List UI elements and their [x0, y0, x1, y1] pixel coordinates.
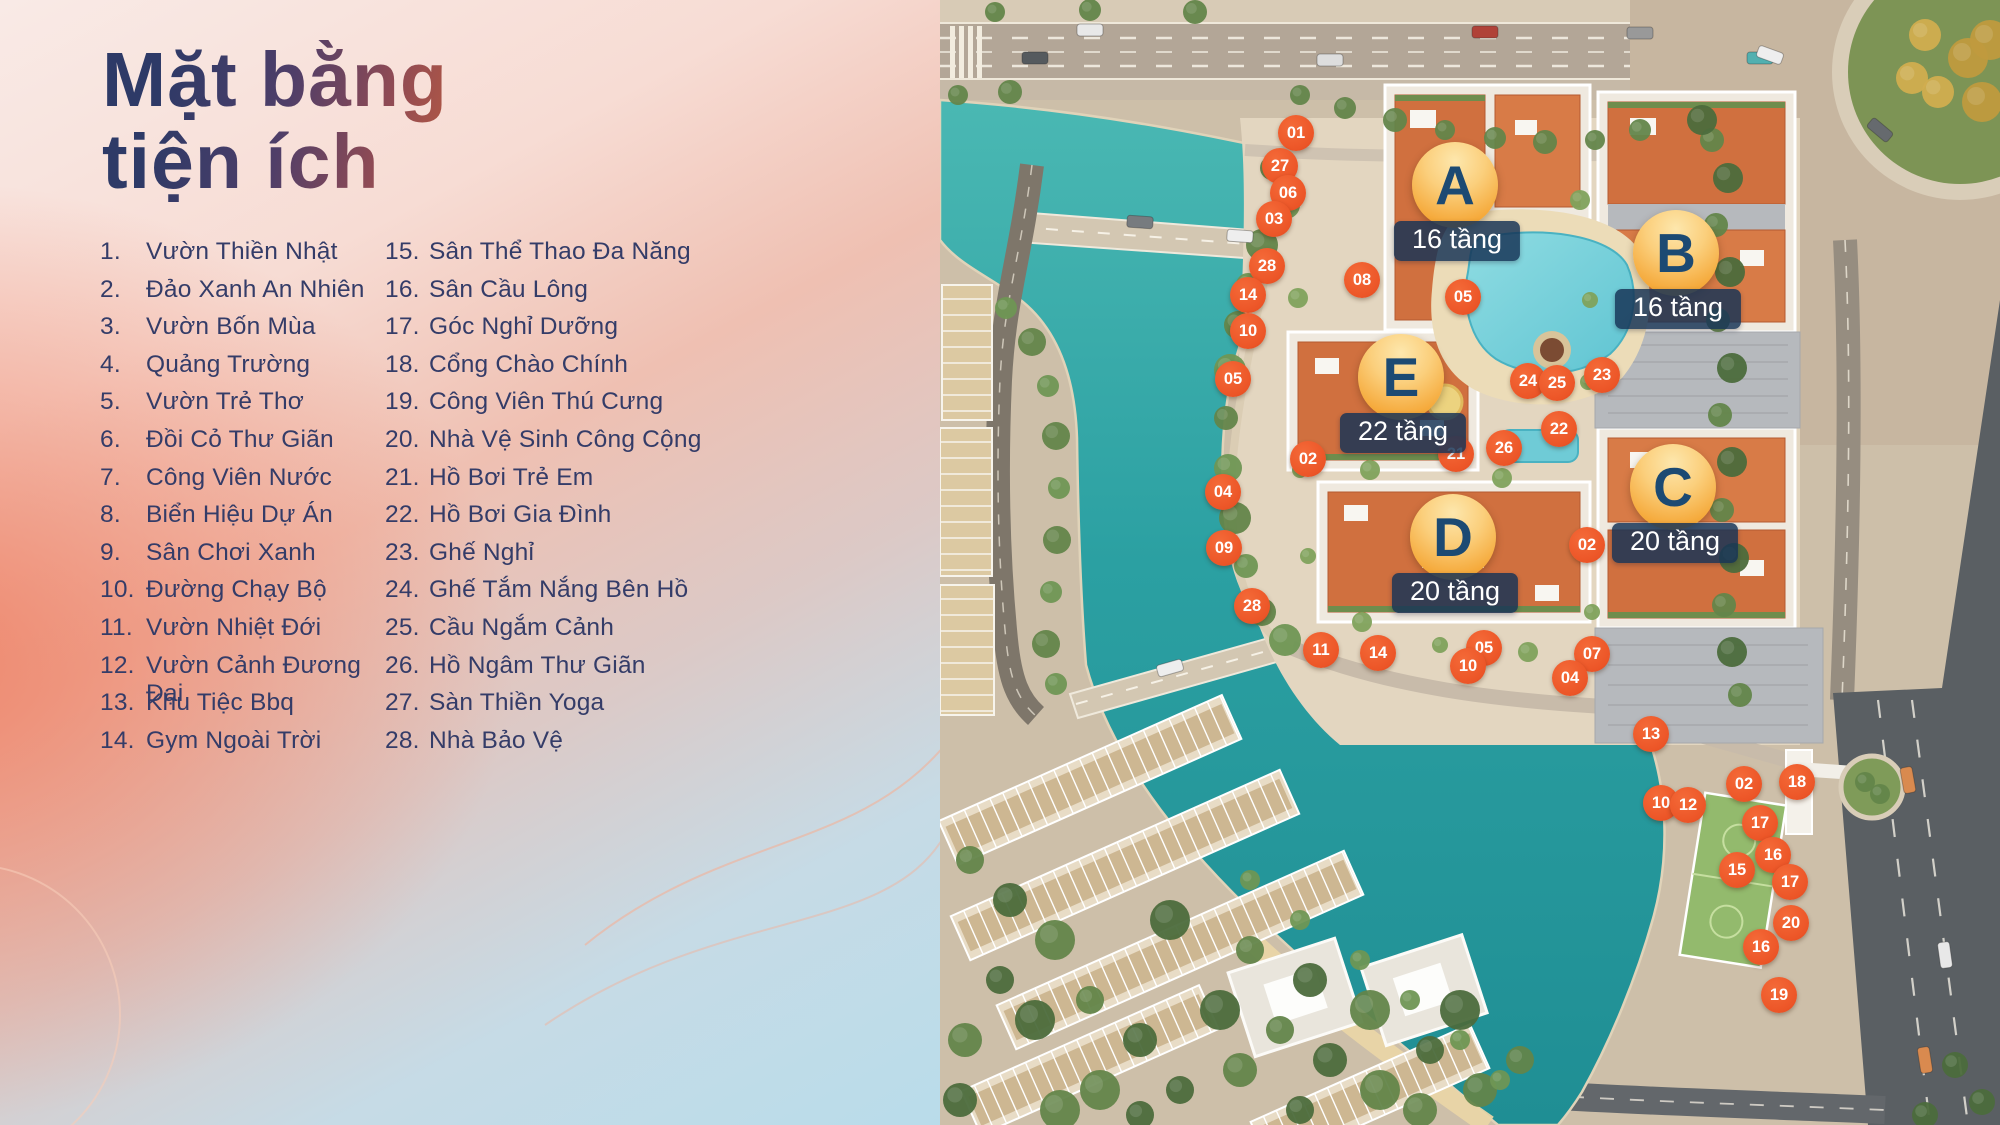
- amenity-marker-18: 18: [1779, 764, 1815, 800]
- legend-item-number: 16.: [385, 276, 429, 304]
- building-floors-e: 22 tầng: [1340, 413, 1466, 453]
- legend-panel: Mặt bằngtiện ích 1.Vườn Thiền Nhật2.Đảo …: [0, 0, 940, 1125]
- legend-item-number: 4.: [100, 351, 146, 379]
- legend-item-number: 25.: [385, 614, 429, 642]
- legend-item: 9.Sân Chơi Xanh: [100, 539, 390, 577]
- amenity-marker-08: 08: [1344, 262, 1380, 298]
- legend-item-number: 7.: [100, 464, 146, 492]
- amenity-marker-20: 20: [1773, 905, 1809, 941]
- legend-item: 11.Vườn Nhiệt Đới: [100, 614, 390, 652]
- legend-column-2: 15.Sân Thể Thao Đa Năng16.Sân Cầu Lông17…: [385, 238, 925, 764]
- legend-item: 12.Vườn Cảnh Đương Đại: [100, 652, 390, 690]
- legend-item-number: 3.: [100, 313, 146, 341]
- legend-column-1: 1.Vườn Thiền Nhật2.Đảo Xanh An Nhiên3.Vư…: [100, 238, 390, 764]
- legend-item-number: 20.: [385, 426, 429, 454]
- legend-item-label: Sân Chơi Xanh: [146, 539, 316, 567]
- building-floors-a: 16 tầng: [1394, 221, 1520, 261]
- side-street: [1842, 240, 1849, 700]
- legend-item-number: 2.: [100, 276, 146, 304]
- deco-curve-2: [545, 835, 940, 1025]
- amenity-marker-12: 12: [1670, 787, 1706, 823]
- legend-item: 4.Quảng Trường: [100, 351, 390, 389]
- legend-item: 17.Góc Nghỉ Dưỡng: [385, 313, 925, 351]
- legend-item: 19.Công Viên Thú Cưng: [385, 388, 925, 426]
- deco-circle: [0, 865, 120, 1125]
- amenity-marker-15: 15: [1719, 852, 1755, 888]
- legend-item: 25.Cầu Ngắm Cảnh: [385, 614, 925, 652]
- legend-item-label: Đảo Xanh An Nhiên: [146, 276, 365, 304]
- amenity-marker-13: 13: [1633, 716, 1669, 752]
- amenity-marker-14: 14: [1230, 277, 1266, 313]
- legend-item-number: 1.: [100, 238, 146, 266]
- amenity-marker-02: 02: [1569, 527, 1605, 563]
- site-plan-map: 0127060328141005080524252322212602040928…: [940, 0, 2000, 1125]
- legend-item: 24.Ghế Tắm Nắng Bên Hồ: [385, 576, 925, 614]
- legend-item: 10.Đường Chạy Bộ: [100, 576, 390, 614]
- legend-item-label: Sàn Thiền Yoga: [429, 689, 604, 717]
- amenity-marker-25: 25: [1539, 365, 1575, 401]
- legend-item-label: Quảng Trường: [146, 351, 310, 379]
- legend-item-number: 8.: [100, 501, 146, 529]
- legend-item: 2.Đảo Xanh An Nhiên: [100, 276, 390, 314]
- amenity-marker-02: 02: [1290, 441, 1326, 477]
- car: [1227, 229, 1254, 243]
- building-badge-d: D: [1410, 494, 1496, 580]
- legend-item-number: 9.: [100, 539, 146, 567]
- amenity-marker-16: 16: [1743, 929, 1779, 965]
- legend-item-number: 27.: [385, 689, 429, 717]
- amenity-marker-28: 28: [1234, 588, 1270, 624]
- amenity-marker-11: 11: [1303, 632, 1339, 668]
- legend-item-label: Đồi Cỏ Thư Giãn: [146, 426, 334, 454]
- legend-item-label: Công Viên Nước: [146, 464, 332, 492]
- amenity-marker-26: 26: [1486, 430, 1522, 466]
- legend-item-label: Vườn Bốn Mùa: [146, 313, 316, 341]
- car: [1472, 26, 1498, 38]
- legend-item: 20.Nhà Vệ Sinh Công Cộng: [385, 426, 925, 464]
- legend-item-label: Nhà Bảo Vệ: [429, 727, 563, 755]
- legend-item: 8.Biển Hiệu Dự Án: [100, 501, 390, 539]
- building-floors-c: 20 tầng: [1612, 523, 1738, 563]
- legend-item-label: Cầu Ngắm Cảnh: [429, 614, 614, 642]
- legend-item-number: 26.: [385, 652, 429, 680]
- legend-item-label: Vườn Nhiệt Đới: [146, 614, 321, 642]
- legend-item-label: Gym Ngoài Trời: [146, 727, 321, 755]
- legend-item-number: 17.: [385, 313, 429, 341]
- masterplan-poster: Mặt bằngtiện ích 1.Vườn Thiền Nhật2.Đảo …: [0, 0, 2000, 1125]
- car: [1627, 27, 1653, 39]
- legend-item-number: 10.: [100, 576, 146, 604]
- legend-item: 6.Đồi Cỏ Thư Giãn: [100, 426, 390, 464]
- amenity-marker-17: 17: [1772, 864, 1808, 900]
- page-title: Mặt bằngtiện ích: [102, 40, 448, 203]
- legend-item: 23.Ghế Nghỉ: [385, 539, 925, 577]
- legend-item-number: 11.: [100, 614, 146, 642]
- amenity-marker-05: 05: [1445, 279, 1481, 315]
- car: [1317, 54, 1343, 66]
- amenity-marker-02: 02: [1726, 766, 1762, 802]
- amenity-marker-10: 10: [1450, 648, 1486, 684]
- car: [1022, 52, 1048, 64]
- south-road: [1540, 1095, 1885, 1110]
- car: [1077, 24, 1103, 36]
- building-badge-a: A: [1412, 142, 1498, 228]
- townhouse-strips: [940, 285, 994, 715]
- deco-curve-1: [585, 745, 940, 945]
- legend-item-label: Khu Tiệc Bbq: [146, 689, 294, 717]
- legend-item-label: Công Viên Thú Cưng: [429, 388, 663, 416]
- legend-item-label: Vườn Trẻ Thơ: [146, 388, 304, 416]
- legend-item-label: Biển Hiệu Dự Án: [146, 501, 333, 529]
- legend-item-number: 15.: [385, 238, 429, 266]
- legend-item-label: Ghế Tắm Nắng Bên Hồ: [429, 576, 688, 604]
- amenity-marker-19: 19: [1761, 977, 1797, 1013]
- legend-item: 7.Công Viên Nước: [100, 464, 390, 502]
- amenity-marker-23: 23: [1584, 357, 1620, 393]
- legend-item: 3.Vườn Bốn Mùa: [100, 313, 390, 351]
- legend-item-number: 19.: [385, 388, 429, 416]
- legend-item-label: Hồ Ngâm Thư Giãn: [429, 652, 646, 680]
- legend-item-label: Sân Thể Thao Đa Năng: [429, 238, 691, 266]
- legend-item: 21.Hồ Bơi Trẻ Em: [385, 464, 925, 502]
- legend-item: 28.Nhà Bảo Vệ: [385, 727, 925, 765]
- legend-item-label: Đường Chạy Bộ: [146, 576, 327, 604]
- building-floors-d: 20 tầng: [1392, 573, 1518, 613]
- building-badge-c: C: [1630, 444, 1716, 530]
- legend-item-number: 21.: [385, 464, 429, 492]
- legend-item: 1.Vườn Thiền Nhật: [100, 238, 390, 276]
- title-line2: tiện ích: [102, 119, 380, 205]
- legend-item-number: 28.: [385, 727, 429, 755]
- amenity-marker-05: 05: [1215, 361, 1251, 397]
- amenity-marker-22: 22: [1541, 411, 1577, 447]
- building-floors-b: 16 tầng: [1615, 289, 1741, 329]
- legend-item-number: 13.: [100, 689, 146, 717]
- legend-item: 27.Sàn Thiền Yoga: [385, 689, 925, 727]
- legend-item: 16.Sân Cầu Lông: [385, 276, 925, 314]
- legend-item: 14.Gym Ngoài Trời: [100, 727, 390, 765]
- legend-item-number: 22.: [385, 501, 429, 529]
- legend-item-number: 5.: [100, 388, 146, 416]
- legend-item-number: 23.: [385, 539, 429, 567]
- legend-item-label: Cổng Chào Chính: [429, 351, 628, 379]
- amenity-marker-03: 03: [1256, 201, 1292, 237]
- amenity-marker-09: 09: [1206, 530, 1242, 566]
- legend-item-label: Góc Nghỉ Dưỡng: [429, 313, 618, 341]
- legend-item-number: 18.: [385, 351, 429, 379]
- amenity-marker-10: 10: [1230, 313, 1266, 349]
- legend-item-label: Ghế Nghỉ: [429, 539, 534, 567]
- building-badge-b: B: [1633, 210, 1719, 296]
- amenity-marker-04: 04: [1205, 474, 1241, 510]
- building-badge-e: E: [1358, 334, 1444, 420]
- legend-item-label: Hồ Bơi Trẻ Em: [429, 464, 593, 492]
- legend-item-number: 14.: [100, 727, 146, 755]
- amenity-marker-01: 01: [1278, 115, 1314, 151]
- legend-item: 5.Vườn Trẻ Thơ: [100, 388, 390, 426]
- car: [1127, 215, 1154, 229]
- legend-item-label: Sân Cầu Lông: [429, 276, 588, 304]
- legend-item-number: 12.: [100, 652, 146, 680]
- amenity-marker-14: 14: [1360, 635, 1396, 671]
- legend-item-label: Nhà Vệ Sinh Công Cộng: [429, 426, 702, 454]
- title-line1: Mặt bằng: [102, 37, 448, 123]
- legend-item-label: Vườn Thiền Nhật: [146, 238, 338, 266]
- legend-item: 22.Hồ Bơi Gia Đình: [385, 501, 925, 539]
- legend-item: 26.Hồ Ngâm Thư Giãn: [385, 652, 925, 690]
- legend-item: 18.Cổng Chào Chính: [385, 351, 925, 389]
- legend-item: 15.Sân Thể Thao Đa Năng: [385, 238, 925, 276]
- amenity-marker-04: 04: [1552, 660, 1588, 696]
- legend-item-number: 24.: [385, 576, 429, 604]
- amenity-marker-17: 17: [1742, 805, 1778, 841]
- legend-item-label: Hồ Bơi Gia Đình: [429, 501, 611, 529]
- legend-item-number: 6.: [100, 426, 146, 454]
